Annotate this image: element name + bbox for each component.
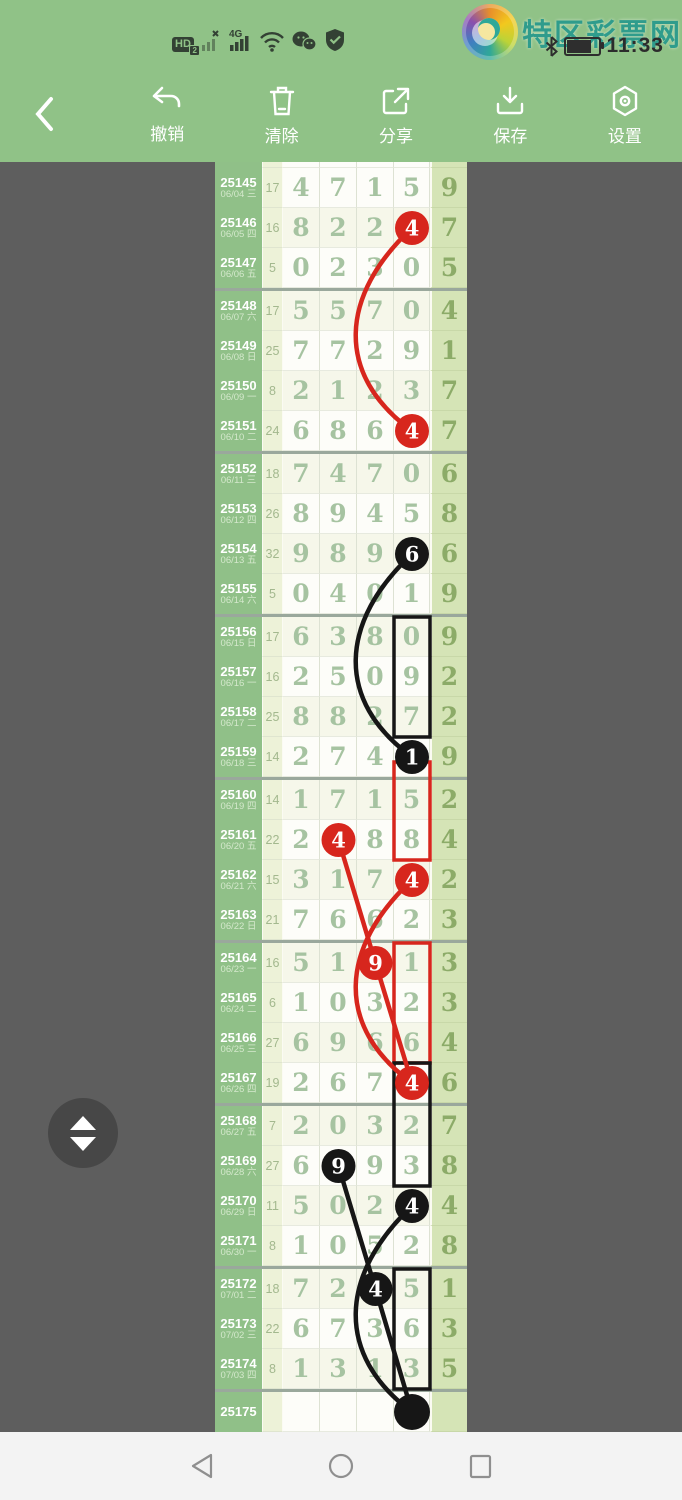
- digit-cell[interactable]: 6: [357, 411, 394, 451]
- digit-cell[interactable]: 4: [394, 1186, 430, 1226]
- period-number: 25164: [220, 951, 256, 965]
- period-cell: 2517106/30 一: [215, 1226, 262, 1266]
- table-row: 2516906/28 六2769938: [215, 1146, 467, 1186]
- digit-cell[interactable]: 1: [357, 1349, 394, 1389]
- table-row: 2514606/05 四1682247: [215, 208, 467, 248]
- period-cell: 2515006/09 一: [215, 371, 262, 411]
- period-number: 25155: [220, 582, 256, 596]
- tail-digit-cell[interactable]: 8: [430, 1146, 467, 1186]
- digit-cell[interactable]: 2: [283, 657, 320, 697]
- period-cell: 2514706/06 五: [215, 248, 262, 288]
- count-cell: 5: [262, 248, 283, 288]
- table-row: 2517407/03 四813135: [215, 1349, 467, 1389]
- undo-button[interactable]: 撤销: [110, 81, 224, 147]
- digit-cell[interactable]: 7: [357, 1063, 394, 1103]
- digit-cell[interactable]: 4: [357, 494, 394, 534]
- tail-digit-cell[interactable]: 9: [430, 574, 467, 614]
- digit-cell[interactable]: 8: [283, 697, 320, 737]
- digit-cell[interactable]: 4: [357, 1269, 394, 1309]
- count-cell: 24: [262, 411, 283, 451]
- period-number: 25149: [220, 339, 256, 353]
- draw-date: 06/20 五: [221, 842, 257, 852]
- digit-cell[interactable]: 7: [320, 737, 357, 777]
- digit-cell[interactable]: 5: [283, 1186, 320, 1226]
- draw-date: 06/10 二: [221, 433, 257, 443]
- tail-digit-cell[interactable]: 7: [430, 1106, 467, 1146]
- recents-square-icon[interactable]: [467, 1452, 493, 1480]
- tail-digit-cell[interactable]: 1: [430, 1269, 467, 1309]
- digit-cell[interactable]: 5: [394, 1269, 430, 1309]
- wifi-icon: [259, 30, 285, 52]
- draw-date: 06/13 五: [221, 556, 257, 566]
- scroll-down-icon: [70, 1137, 96, 1151]
- period-cell: 2514806/07 六: [215, 291, 262, 331]
- digit-cell[interactable]: 2: [283, 1106, 320, 1146]
- digit-cell[interactable]: 8: [283, 208, 320, 248]
- count-cell: 5: [262, 574, 283, 614]
- table-row: 2516806/27 五720327: [215, 1106, 467, 1146]
- tail-digit-cell[interactable]: 9: [430, 737, 467, 777]
- digit-cell[interactable]: 8: [283, 494, 320, 534]
- toolbar-items: 撤销 清除 分享: [110, 81, 682, 147]
- period-number: 25171: [220, 1234, 256, 1248]
- digit-cell[interactable]: [357, 1392, 394, 1432]
- digit-cell[interactable]: 5: [394, 780, 430, 820]
- digit-cell[interactable]: 7: [320, 780, 357, 820]
- period-cell: 2517407/03 四: [215, 1349, 262, 1389]
- digit-cell[interactable]: 8: [320, 411, 357, 451]
- digit-cell[interactable]: 8: [394, 820, 430, 860]
- share-button[interactable]: 分享: [339, 81, 453, 147]
- digit-cell[interactable]: 4: [394, 1063, 430, 1103]
- digit-cell[interactable]: 3: [357, 1309, 394, 1349]
- count-cell: 32: [262, 534, 283, 574]
- tail-digit-cell[interactable]: 7: [430, 411, 467, 451]
- digit-cell[interactable]: 6: [283, 1023, 320, 1063]
- digit-cell[interactable]: 5: [394, 168, 430, 208]
- digit-cell[interactable]: 1: [320, 371, 357, 411]
- draw-date: 06/21 六: [221, 882, 257, 892]
- count-cell: [262, 1392, 283, 1432]
- digit-cell[interactable]: 2: [283, 820, 320, 860]
- digit-cell[interactable]: 9: [320, 1146, 357, 1186]
- digit-cell[interactable]: 0: [357, 657, 394, 697]
- save-button[interactable]: 保存: [453, 81, 567, 147]
- tail-digit-cell[interactable]: 3: [430, 1309, 467, 1349]
- digit-cell[interactable]: 2: [394, 983, 430, 1023]
- digit-cell[interactable]: 6: [283, 411, 320, 451]
- tail-digit-cell[interactable]: 6: [430, 1063, 467, 1103]
- tail-digit-cell[interactable]: 4: [430, 1023, 467, 1063]
- trash-icon: [267, 85, 297, 117]
- digit-cell[interactable]: 3: [283, 860, 320, 900]
- table-row: 2515306/12 四2689458: [215, 494, 467, 534]
- digit-cell[interactable]: 2: [320, 1269, 357, 1309]
- 4g-signal-icon: 4G: [228, 28, 252, 52]
- period-number: 25156: [220, 625, 256, 639]
- table-row: 2515406/13 五3298966: [215, 534, 467, 574]
- count-cell: 16: [262, 208, 283, 248]
- settings-label: 设置: [608, 122, 642, 147]
- period-number: 25151: [220, 419, 256, 433]
- period-number: 25162: [220, 868, 256, 882]
- period-cell: 2516506/24 二: [215, 983, 262, 1023]
- table-row: 2517106/30 一810528: [215, 1226, 467, 1266]
- digit-cell[interactable]: 6: [357, 1023, 394, 1063]
- tail-digit-cell[interactable]: 2: [430, 860, 467, 900]
- digit-cell[interactable]: 2: [394, 900, 430, 940]
- digit-cell[interactable]: 0: [357, 574, 394, 614]
- wechat-icon: [292, 30, 317, 52]
- digit-cell[interactable]: 3: [394, 1349, 430, 1389]
- digit-cell[interactable]: 6: [394, 534, 430, 574]
- tail-digit-cell[interactable]: 2: [430, 697, 467, 737]
- clear-button[interactable]: 清除: [224, 81, 338, 147]
- battery-icon: [564, 37, 601, 56]
- digit-cell[interactable]: 0: [320, 1106, 357, 1146]
- save-icon: [494, 85, 526, 117]
- digit-cell[interactable]: 3: [394, 1146, 430, 1186]
- undo-label: 撤销: [150, 120, 184, 145]
- tail-digit-cell[interactable]: 6: [430, 454, 467, 494]
- digit-cell[interactable]: 9: [320, 1023, 357, 1063]
- digit-cell[interactable]: 8: [320, 697, 357, 737]
- digit-cell[interactable]: 4: [320, 574, 357, 614]
- digit-cell[interactable]: 7: [283, 1269, 320, 1309]
- digit-cell[interactable]: 2: [357, 331, 394, 371]
- logo-swirl-icon: [462, 4, 518, 60]
- digit-cell[interactable]: 3: [357, 1106, 394, 1146]
- digit-cell[interactable]: 6: [394, 1309, 430, 1349]
- count-cell: 27: [262, 1023, 283, 1063]
- digit-cell[interactable]: 8: [320, 534, 357, 574]
- digit-cell[interactable]: 5: [283, 291, 320, 331]
- home-circle-icon[interactable]: [327, 1452, 355, 1480]
- digit-cell[interactable]: 7: [283, 331, 320, 371]
- period-cell: 2516006/19 四: [215, 780, 262, 820]
- digit-cell[interactable]: 2: [283, 737, 320, 777]
- digit-cell[interactable]: 7: [320, 168, 357, 208]
- android-nav-bar: [0, 1432, 682, 1500]
- digit-cell[interactable]: 9: [357, 534, 394, 574]
- count-cell: 22: [262, 1309, 283, 1349]
- period-number: 25150: [220, 379, 256, 393]
- table-row: 2514806/07 六1755704: [215, 291, 467, 331]
- digit-cell[interactable]: 1: [394, 574, 430, 614]
- draw-date: 06/09 一: [221, 393, 257, 403]
- period-number: 25168: [220, 1114, 256, 1128]
- tail-digit-cell[interactable]: 2: [430, 657, 467, 697]
- tail-digit-cell[interactable]: 2: [430, 780, 467, 820]
- period-number: 25158: [220, 705, 256, 719]
- period-number: 25159: [220, 745, 256, 759]
- digit-cell[interactable]: 1: [320, 943, 357, 983]
- digit-cell[interactable]: 7: [357, 291, 394, 331]
- digit-cell[interactable]: 0: [283, 248, 320, 288]
- digit-cell[interactable]: 7: [283, 454, 320, 494]
- tail-digit-cell[interactable]: 3: [430, 900, 467, 940]
- draw-date: 06/30 一: [221, 1248, 257, 1258]
- count-cell: 11: [262, 1186, 283, 1226]
- draw-date: 06/23 一: [221, 965, 257, 975]
- digit-cell[interactable]: [320, 1392, 357, 1432]
- digit-cell[interactable]: 8: [357, 617, 394, 657]
- tail-digit-cell[interactable]: 8: [430, 494, 467, 534]
- digit-cell[interactable]: 1: [320, 860, 357, 900]
- period-cell: 2515206/11 三: [215, 454, 262, 494]
- digit-cell[interactable]: 2: [283, 1063, 320, 1103]
- digit-cell[interactable]: 4: [394, 208, 430, 248]
- hd-icon: HD2: [172, 37, 194, 52]
- table-row: 2516406/23 一1651913: [215, 943, 467, 983]
- digit-cell[interactable]: 9: [394, 657, 430, 697]
- draw-date: 06/25 三: [221, 1045, 257, 1055]
- count-cell: 26: [262, 494, 283, 534]
- digit-cell[interactable]: 9: [357, 943, 394, 983]
- digit-cell[interactable]: 0: [320, 1186, 357, 1226]
- digit-cell[interactable]: 4: [394, 860, 430, 900]
- table-row: 2515606/15 日1763809: [215, 617, 467, 657]
- count-cell: 17: [262, 291, 283, 331]
- tail-digit-cell[interactable]: 3: [430, 983, 467, 1023]
- tail-digit-cell[interactable]: 8: [430, 1226, 467, 1266]
- period-cell: 2516606/25 三: [215, 1023, 262, 1063]
- digit-cell[interactable]: 2: [357, 371, 394, 411]
- digit-cell[interactable]: 1: [357, 780, 394, 820]
- digit-cell[interactable]: 0: [283, 574, 320, 614]
- digit-cell[interactable]: 3: [357, 983, 394, 1023]
- digit-cell[interactable]: 4: [394, 411, 430, 451]
- table-row: 2516706/26 四1926746: [215, 1063, 467, 1103]
- count-cell: 6: [262, 983, 283, 1023]
- draw-date: 06/14 六: [221, 596, 257, 606]
- period-cell: 2517207/01 二: [215, 1269, 262, 1309]
- digit-cell[interactable]: 7: [320, 1309, 357, 1349]
- digit-cell[interactable]: 0: [394, 454, 430, 494]
- digit-cell[interactable]: 4: [283, 168, 320, 208]
- tail-digit-cell[interactable]: 1: [430, 331, 467, 371]
- period-cell: 2514906/08 日: [215, 331, 262, 371]
- digit-cell[interactable]: 0: [394, 617, 430, 657]
- count-cell: 16: [262, 657, 283, 697]
- tail-digit-cell[interactable]: 4: [430, 1186, 467, 1226]
- period-cell: 2514506/04 三: [215, 168, 262, 208]
- table-row: 2515106/10 二2468647: [215, 411, 467, 451]
- digit-cell[interactable]: 3: [320, 617, 357, 657]
- table-row: 2515906/18 三1427419: [215, 737, 467, 777]
- digit-cell[interactable]: 1: [357, 168, 394, 208]
- digit-cell[interactable]: 6: [283, 1309, 320, 1349]
- draw-date: 06/04 三: [221, 190, 257, 200]
- period-number: 25153: [220, 502, 256, 516]
- count-cell: 8: [262, 1349, 283, 1389]
- draw-date: 06/26 四: [221, 1085, 257, 1095]
- back-triangle-icon[interactable]: [189, 1452, 215, 1480]
- period-number: 25163: [220, 908, 256, 922]
- digit-cell[interactable]: 2: [320, 248, 357, 288]
- table-row: 2515806/17 二2588272: [215, 697, 467, 737]
- digit-cell[interactable]: 2: [394, 1106, 430, 1146]
- digit-cell[interactable]: 6: [320, 1063, 357, 1103]
- digit-cell[interactable]: 8: [357, 820, 394, 860]
- digit-cell[interactable]: 2: [357, 697, 394, 737]
- digit-cell[interactable]: 6: [283, 1146, 320, 1186]
- digit-cell[interactable]: 5: [357, 1226, 394, 1266]
- scroll-up-icon: [70, 1116, 96, 1130]
- draw-date: 06/06 五: [221, 270, 257, 280]
- period-number: 25145: [220, 176, 256, 190]
- digit-cell[interactable]: 3: [320, 1349, 357, 1389]
- table-row: 2514506/04 三1747159: [215, 168, 467, 208]
- period-number: 25172: [220, 1277, 256, 1291]
- period-cell: 2517307/02 三: [215, 1309, 262, 1349]
- period-number: 25160: [220, 788, 256, 802]
- period-cell: 2515506/14 六: [215, 574, 262, 614]
- digit-cell[interactable]: 7: [394, 697, 430, 737]
- digit-cell[interactable]: 9: [283, 534, 320, 574]
- period-number: 25173: [220, 1317, 256, 1331]
- digit-cell[interactable]: 2: [357, 208, 394, 248]
- app-screen: HD2 4G: [0, 0, 682, 1500]
- status-left-icons: HD2 4G: [172, 28, 346, 52]
- period-cell: 25175: [215, 1392, 262, 1432]
- digit-cell[interactable]: 3: [357, 248, 394, 288]
- digit-cell[interactable]: 2: [357, 1186, 394, 1226]
- digit-cell[interactable]: 4: [320, 820, 357, 860]
- period-cell: 2515606/15 日: [215, 617, 262, 657]
- table-row: 2517307/02 三2267363: [215, 1309, 467, 1349]
- table-row: 2516206/21 六1531742: [215, 860, 467, 900]
- status-bar: HD2 4G: [0, 0, 682, 66]
- digit-cell[interactable]: 7: [357, 860, 394, 900]
- digit-cell[interactable]: 1: [394, 943, 430, 983]
- digit-cell[interactable]: 6: [394, 1023, 430, 1063]
- digit-cell[interactable]: 0: [320, 983, 357, 1023]
- digit-cell[interactable]: 9: [320, 494, 357, 534]
- table-row: 2515006/09 一821237: [215, 371, 467, 411]
- period-cell: 2515306/12 四: [215, 494, 262, 534]
- digit-cell[interactable]: 5: [320, 291, 357, 331]
- no-sim-signal-icon: [201, 30, 221, 52]
- tail-digit-cell[interactable]: 6: [430, 534, 467, 574]
- settings-icon: [609, 85, 641, 117]
- digit-cell[interactable]: 2: [320, 208, 357, 248]
- tail-digit-cell[interactable]: 7: [430, 371, 467, 411]
- tail-digit-cell[interactable]: [430, 1392, 467, 1432]
- period-cell: 2515406/13 五: [215, 534, 262, 574]
- draw-date: 06/07 六: [221, 313, 257, 323]
- period-number: 25170: [220, 1194, 256, 1208]
- table-row: 2514906/08 日2577291: [215, 331, 467, 371]
- table-row: 25175: [215, 1392, 467, 1432]
- draw-date: 06/05 四: [221, 230, 257, 240]
- draw-date: 07/01 二: [221, 1291, 257, 1301]
- digit-cell[interactable]: 1: [283, 1226, 320, 1266]
- trend-table: 2514506/04 三17471592514606/05 四168224725…: [215, 162, 467, 1432]
- tail-digit-cell[interactable]: 9: [430, 617, 467, 657]
- digit-cell[interactable]: 6: [320, 900, 357, 940]
- count-cell: 19: [262, 1063, 283, 1103]
- draw-date: 06/27 五: [221, 1128, 257, 1138]
- save-label: 保存: [493, 122, 527, 147]
- digit-cell[interactable]: 7: [357, 454, 394, 494]
- draw-date: 06/29 日: [221, 1208, 257, 1218]
- digit-cell[interactable]: 9: [357, 1146, 394, 1186]
- digit-cell[interactable]: 6: [283, 617, 320, 657]
- digit-cell[interactable]: 0: [320, 1226, 357, 1266]
- security-shield-icon: [324, 28, 346, 52]
- tail-digit-cell[interactable]: 7: [430, 208, 467, 248]
- table-row: 2516606/25 三2769664: [215, 1023, 467, 1063]
- digit-cell[interactable]: 0: [394, 291, 430, 331]
- table-row: 2515206/11 三1874706: [215, 454, 467, 494]
- count-cell: 22: [262, 820, 283, 860]
- digit-cell[interactable]: 0: [394, 248, 430, 288]
- digit-cell[interactable]: 7: [283, 900, 320, 940]
- digit-cell[interactable]: 5: [320, 657, 357, 697]
- settings-button[interactable]: 设置: [568, 81, 682, 147]
- digit-cell[interactable]: 4: [357, 737, 394, 777]
- digit-cell[interactable]: 9: [394, 331, 430, 371]
- count-cell: 15: [262, 860, 283, 900]
- bluetooth-icon: [544, 36, 559, 57]
- period-cell: 2514606/05 四: [215, 208, 262, 248]
- period-cell: 2515806/17 二: [215, 697, 262, 737]
- digit-cell[interactable]: [283, 1392, 320, 1432]
- digit-cell[interactable]: 7: [320, 331, 357, 371]
- tail-digit-cell[interactable]: 4: [430, 820, 467, 860]
- period-cell: 2516206/21 六: [215, 860, 262, 900]
- scroll-toggle-button[interactable]: [48, 1098, 118, 1168]
- table-row: 2517006/29 日1150244: [215, 1186, 467, 1226]
- period-cell: 2516106/20 五: [215, 820, 262, 860]
- table-row: 2516306/22 日2176623: [215, 900, 467, 940]
- back-chevron-icon: [32, 95, 56, 133]
- tail-digit-cell[interactable]: 5: [430, 1349, 467, 1389]
- digit-cell[interactable]: 1: [283, 983, 320, 1023]
- digit-cell[interactable]: 3: [394, 371, 430, 411]
- digit-cell[interactable]: 2: [283, 371, 320, 411]
- period-number: 25166: [220, 1031, 256, 1045]
- period-number: 25146: [220, 216, 256, 230]
- draw-date: 06/17 二: [221, 719, 257, 729]
- share-icon: [380, 85, 412, 117]
- digit-cell[interactable]: 6: [357, 900, 394, 940]
- digit-cell[interactable]: [394, 1392, 430, 1432]
- period-cell: 2515106/10 二: [215, 411, 262, 451]
- draw-date: 06/19 四: [221, 802, 257, 812]
- digit-cell[interactable]: 5: [283, 943, 320, 983]
- back-button[interactable]: [0, 95, 110, 133]
- tail-digit-cell[interactable]: 5: [430, 248, 467, 288]
- digit-cell[interactable]: 4: [320, 454, 357, 494]
- tail-digit-cell[interactable]: 4: [430, 291, 467, 331]
- digit-cell[interactable]: 1: [283, 1349, 320, 1389]
- period-cell: 2516406/23 一: [215, 943, 262, 983]
- tail-digit-cell[interactable]: 3: [430, 943, 467, 983]
- digit-cell[interactable]: 1: [394, 737, 430, 777]
- count-cell: 14: [262, 780, 283, 820]
- digit-cell[interactable]: 2: [394, 1226, 430, 1266]
- count-cell: 18: [262, 1269, 283, 1309]
- count-cell: 18: [262, 454, 283, 494]
- digit-cell[interactable]: 5: [394, 494, 430, 534]
- undo-icon: [150, 85, 184, 115]
- digit-cell[interactable]: 1: [283, 780, 320, 820]
- count-cell: 21: [262, 900, 283, 940]
- tail-digit-cell[interactable]: 9: [430, 168, 467, 208]
- count-cell: 25: [262, 697, 283, 737]
